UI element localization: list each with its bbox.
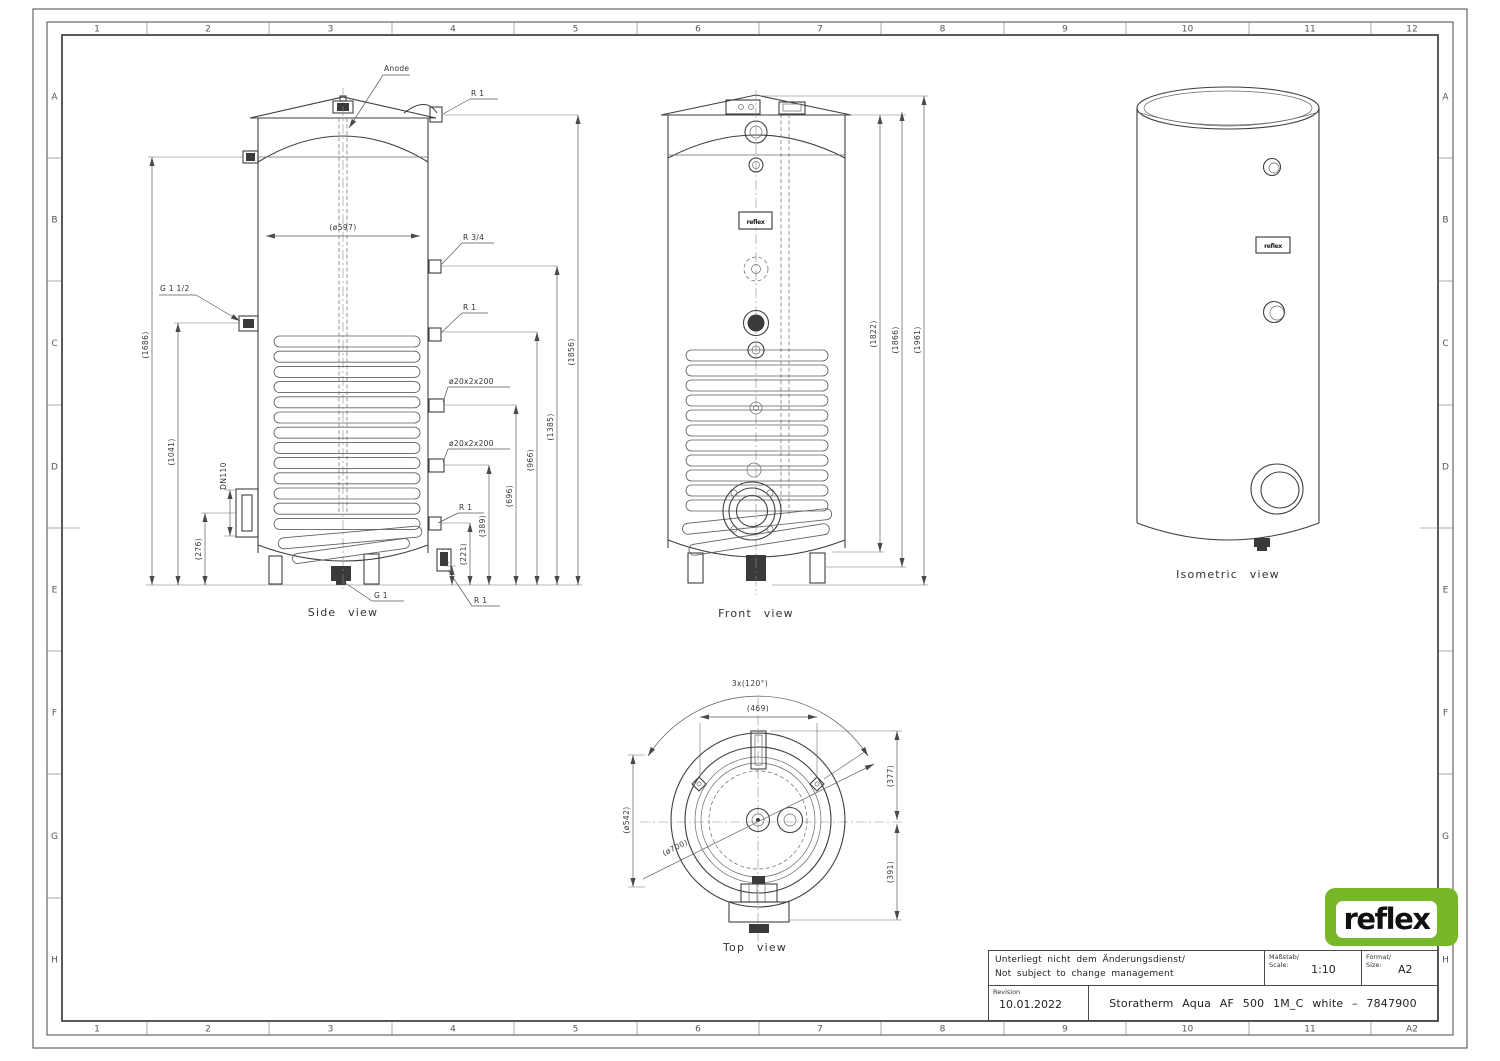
dim-469: (469) bbox=[747, 704, 769, 713]
grid-col-label-bottom: 2 bbox=[205, 1025, 211, 1035]
front-dome bbox=[668, 135, 845, 158]
grid-row-label-left: H bbox=[51, 956, 58, 966]
label-g1-half: G 1 1/2 bbox=[160, 284, 190, 293]
side-r1-low-nipple bbox=[429, 517, 441, 530]
grid-col-label-top: 6 bbox=[695, 25, 701, 35]
label-pipe-lower: ø20x2x200 bbox=[449, 439, 494, 448]
change-note-en: Not subject to change management bbox=[995, 968, 1258, 982]
grid-col-label-bottom: 7 bbox=[817, 1025, 823, 1035]
dim-221: (221) bbox=[459, 543, 468, 565]
dim-55: (55) bbox=[441, 548, 450, 565]
iso-flange bbox=[1251, 464, 1303, 514]
side-view-caption: Side view bbox=[308, 606, 378, 619]
title-block: Unterliegt nicht dem Änderungsdienst/ No… bbox=[988, 950, 1438, 1021]
dim-arc: 3x(120°) bbox=[732, 679, 768, 688]
dim-1856: (1856) bbox=[567, 338, 576, 365]
cad-drawing: 1122334455667788991010111112A2AABBCCDDEE… bbox=[0, 0, 1500, 1061]
grid-row-label-left: B bbox=[51, 216, 57, 226]
format-label-en: Size: bbox=[1366, 961, 1391, 969]
format-value: A2 bbox=[1398, 963, 1413, 976]
reflex-logo-inner: reflex bbox=[1336, 901, 1437, 938]
grid-row-label-right: A bbox=[1442, 93, 1449, 103]
label-r1-low: R 1 bbox=[459, 503, 472, 512]
iso-top-ellipse bbox=[1137, 87, 1319, 129]
grid-col-label-top: 1 bbox=[94, 25, 100, 35]
grid-col-label-top: 10 bbox=[1182, 25, 1194, 35]
dim-d542: (ø542) bbox=[622, 806, 631, 833]
label-r1-bottom: R 1 bbox=[474, 596, 487, 605]
drawing-title: Storatherm Aqua AF 500 1M_C white – 7847… bbox=[1089, 986, 1437, 1021]
side-heating-coil bbox=[274, 336, 422, 564]
grid-row-label-left: C bbox=[51, 339, 57, 349]
grid-row-label-left: A bbox=[51, 93, 58, 103]
reflex-logo: reflex bbox=[1325, 888, 1458, 946]
front-bottom-dome bbox=[668, 540, 845, 557]
grid-row-label-right: B bbox=[1442, 216, 1448, 226]
grid-col-label-top: 4 bbox=[450, 25, 456, 35]
grid-row-label-right: C bbox=[1442, 339, 1448, 349]
iso-bottom bbox=[1137, 523, 1319, 540]
side-pipe-lower bbox=[429, 459, 444, 472]
front-top-plate-left bbox=[726, 100, 760, 114]
side-bottom-fitting bbox=[331, 566, 351, 581]
grid-col-label-top: 3 bbox=[328, 25, 334, 35]
side-view: Anode R 1 R 3/4 R 1 ø20x2x200 ø20x2x200 … bbox=[141, 64, 582, 619]
front-nameplate-text: reflex bbox=[747, 219, 765, 226]
dim-d597: (ø597) bbox=[329, 223, 356, 232]
format-label-de: Format/ bbox=[1366, 953, 1391, 961]
grid-row-label-left: D bbox=[51, 463, 58, 473]
revision-date: 10.01.2022 bbox=[999, 998, 1062, 1011]
grid-col-label-bottom: 3 bbox=[328, 1025, 334, 1035]
dim-1822: (1822) bbox=[869, 320, 878, 347]
iso-nameplate-text: reflex bbox=[1264, 243, 1282, 250]
label-r1-mid: R 1 bbox=[463, 303, 476, 312]
grid-col-label-top: 5 bbox=[573, 25, 579, 35]
grid-col-label-top: 12 bbox=[1406, 25, 1417, 35]
grid-col-label-bottom: 4 bbox=[450, 1025, 456, 1035]
change-note: Unterliegt nicht dem Änderungsdienst/ No… bbox=[989, 951, 1265, 985]
dim-696: (696) bbox=[505, 485, 514, 507]
grid-row-label-right: H bbox=[1442, 956, 1449, 966]
grid-col-label-bottom: 6 bbox=[695, 1025, 701, 1035]
front-extension-lines bbox=[760, 96, 928, 585]
dim-1866: (1866) bbox=[891, 326, 900, 353]
scale-value: 1:10 bbox=[1311, 963, 1336, 976]
front-foot-left bbox=[688, 553, 703, 583]
scale-label-en: Scale: bbox=[1269, 961, 1299, 969]
grid-col-label-bottom: 10 bbox=[1182, 1025, 1194, 1035]
dim-dn110: DN110 bbox=[219, 462, 228, 490]
side-foot-left bbox=[269, 556, 282, 584]
side-r34-nipple bbox=[429, 260, 441, 273]
format-cell: Format/ Size: A2 bbox=[1362, 951, 1437, 985]
dim-1686: (1686) bbox=[141, 331, 150, 358]
reflex-logo-text: reflex bbox=[1344, 902, 1430, 936]
grid-col-label-top: 9 bbox=[1062, 25, 1068, 35]
grid-col-label-top: 11 bbox=[1304, 25, 1315, 35]
anode-label: Anode bbox=[384, 64, 409, 73]
front-view-caption: Front view bbox=[718, 607, 794, 620]
scale-cell: Maßstab/ Scale: 1:10 bbox=[1265, 951, 1362, 985]
grid-col-label-bottom: A2 bbox=[1406, 1025, 1418, 1035]
dim-966: (966) bbox=[526, 449, 535, 471]
iso-view-caption: Isometric view bbox=[1176, 568, 1280, 581]
dim-1961: (1961) bbox=[913, 326, 922, 353]
front-foot-right bbox=[810, 553, 825, 583]
grid-row-label-left: G bbox=[51, 832, 58, 842]
grid-row-label-left: F bbox=[52, 709, 57, 719]
side-pipe-upper bbox=[429, 399, 444, 412]
dim-391: (391) bbox=[886, 861, 895, 883]
label-pipe-upper: ø20x2x200 bbox=[449, 377, 494, 386]
top-view-caption: Top view bbox=[722, 941, 787, 954]
change-note-de: Unterliegt nicht dem Änderungsdienst/ bbox=[995, 954, 1258, 968]
label-r34: R 3/4 bbox=[463, 233, 484, 242]
dim-1385: (1385) bbox=[546, 413, 555, 440]
isometric-view: reflex Isometric view bbox=[1137, 87, 1319, 581]
grid-col-label-bottom: 11 bbox=[1304, 1025, 1315, 1035]
revision-label: Revision bbox=[993, 988, 1020, 996]
grid-row-label-right: D bbox=[1442, 463, 1449, 473]
iso-bottom-fitting bbox=[1254, 538, 1270, 547]
top-offset-port bbox=[778, 808, 803, 833]
drawing-sheet: 1122334455667788991010111112A2AABBCCDDEE… bbox=[0, 0, 1500, 1061]
top-view: 3x(120°) (469) (377) (391) (ø542) (ø700)… bbox=[622, 679, 902, 954]
grid-col-label-bottom: 1 bbox=[94, 1025, 100, 1035]
dim-276: (276) bbox=[194, 538, 203, 560]
revision-cell: Revision 10.01.2022 bbox=[989, 986, 1089, 1021]
side-r1-mid-nipple bbox=[429, 328, 441, 341]
grid-col-label-bottom: 9 bbox=[1062, 1025, 1068, 1035]
front-view: reflex (1822) (1866) (1961) Front view bbox=[661, 90, 928, 620]
side-dn110-flange bbox=[236, 489, 258, 537]
grid-col-label-top: 7 bbox=[817, 25, 823, 35]
grid-row-label-right: F bbox=[1443, 709, 1448, 719]
dim-377: (377) bbox=[886, 765, 895, 787]
label-r1-top: R 1 bbox=[471, 89, 484, 98]
grid-col-label-top: 8 bbox=[940, 25, 946, 35]
label-g1: G 1 bbox=[374, 591, 388, 600]
grid-row-label-left: E bbox=[52, 586, 58, 596]
dim-389: (389) bbox=[478, 515, 487, 537]
grid-row-label-right: E bbox=[1443, 586, 1449, 596]
dim-d700: (ø700) bbox=[661, 838, 689, 858]
grid-row-label-right: G bbox=[1442, 832, 1449, 842]
grid-col-label-bottom: 5 bbox=[573, 1025, 579, 1035]
grid-col-label-top: 2 bbox=[205, 25, 211, 35]
grid-col-label-bottom: 8 bbox=[940, 1025, 946, 1035]
dim-1041: (1041) bbox=[167, 438, 176, 465]
scale-label-de: Maßstab/ bbox=[1269, 953, 1299, 961]
